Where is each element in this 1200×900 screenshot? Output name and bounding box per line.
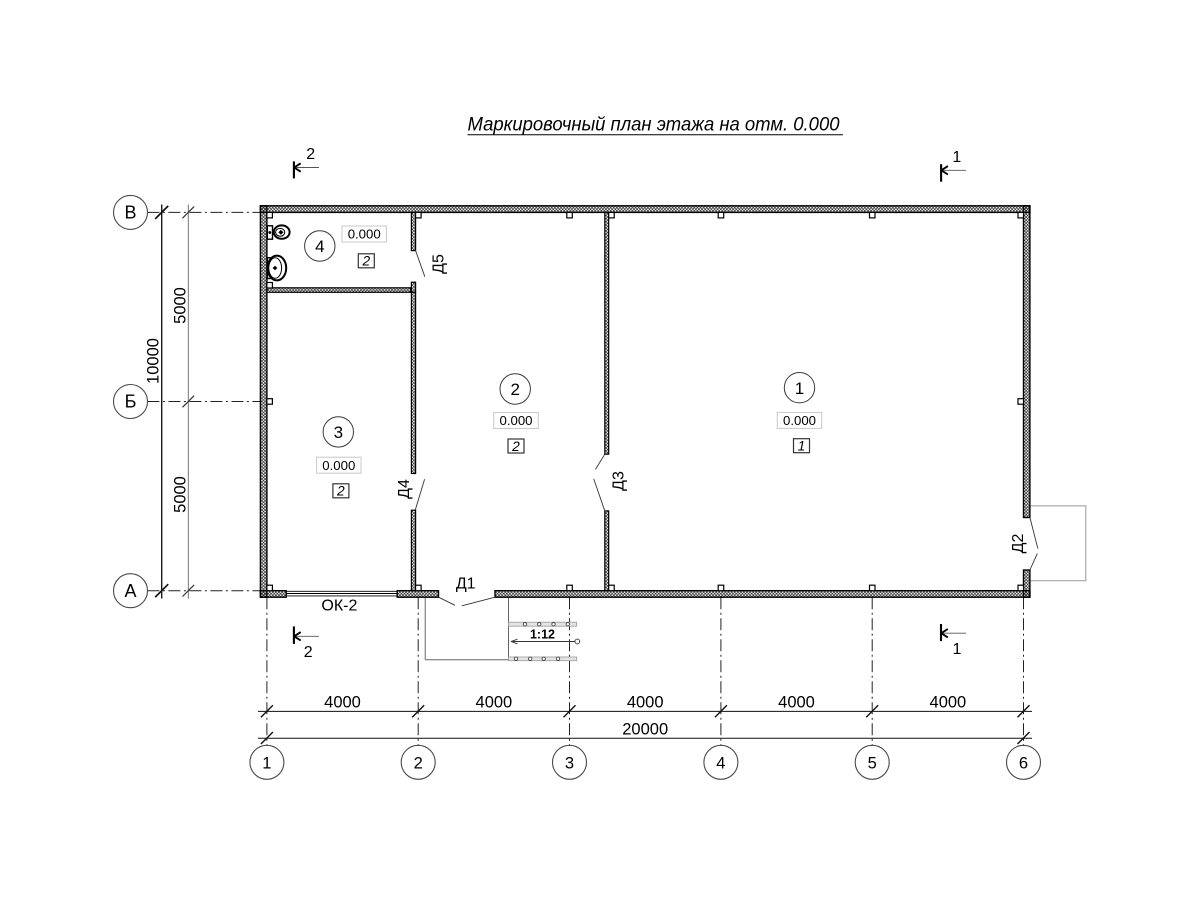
svg-text:Д1: Д1 <box>456 575 476 592</box>
svg-text:5: 5 <box>868 755 877 773</box>
svg-text:2: 2 <box>306 146 315 163</box>
svg-text:4000: 4000 <box>778 694 815 712</box>
svg-text:Д3: Д3 <box>610 471 627 491</box>
svg-text:2: 2 <box>336 484 345 499</box>
svg-text:Б: Б <box>125 392 137 412</box>
svg-text:А: А <box>124 581 136 601</box>
svg-text:4000: 4000 <box>627 694 664 712</box>
svg-text:2: 2 <box>414 755 423 773</box>
svg-text:10000: 10000 <box>144 338 162 384</box>
svg-text:0.000: 0.000 <box>348 227 381 242</box>
svg-text:3: 3 <box>565 755 574 773</box>
svg-text:1:12: 1:12 <box>530 628 555 642</box>
svg-text:6: 6 <box>1019 755 1028 773</box>
svg-text:0.000: 0.000 <box>783 413 816 428</box>
svg-text:1: 1 <box>795 379 804 398</box>
svg-text:4000: 4000 <box>476 694 513 712</box>
svg-text:5000: 5000 <box>171 287 189 324</box>
svg-text:5000: 5000 <box>171 476 189 513</box>
svg-text:1: 1 <box>952 149 961 166</box>
svg-text:3: 3 <box>334 423 343 442</box>
svg-text:4000: 4000 <box>324 694 361 712</box>
svg-text:Д4: Д4 <box>396 479 413 499</box>
svg-text:2: 2 <box>511 439 520 454</box>
svg-text:4: 4 <box>716 755 725 773</box>
svg-text:0.000: 0.000 <box>322 458 355 473</box>
svg-text:20000: 20000 <box>622 720 668 738</box>
svg-text:Маркировочный план этажа на от: Маркировочный план этажа на отм. 0.000 <box>468 115 840 136</box>
svg-text:В: В <box>124 203 136 223</box>
svg-text:2: 2 <box>361 254 370 269</box>
svg-text:2: 2 <box>510 380 519 399</box>
svg-text:2: 2 <box>304 644 313 661</box>
svg-text:Д2: Д2 <box>1010 534 1027 554</box>
svg-text:1: 1 <box>798 439 806 454</box>
svg-text:1: 1 <box>953 641 962 658</box>
svg-text:Д5: Д5 <box>431 254 448 274</box>
svg-text:ОК-2: ОК-2 <box>321 598 357 615</box>
svg-text:4: 4 <box>315 237 324 256</box>
svg-text:4000: 4000 <box>930 694 967 712</box>
svg-text:0.000: 0.000 <box>499 413 532 428</box>
svg-text:1: 1 <box>262 755 271 773</box>
